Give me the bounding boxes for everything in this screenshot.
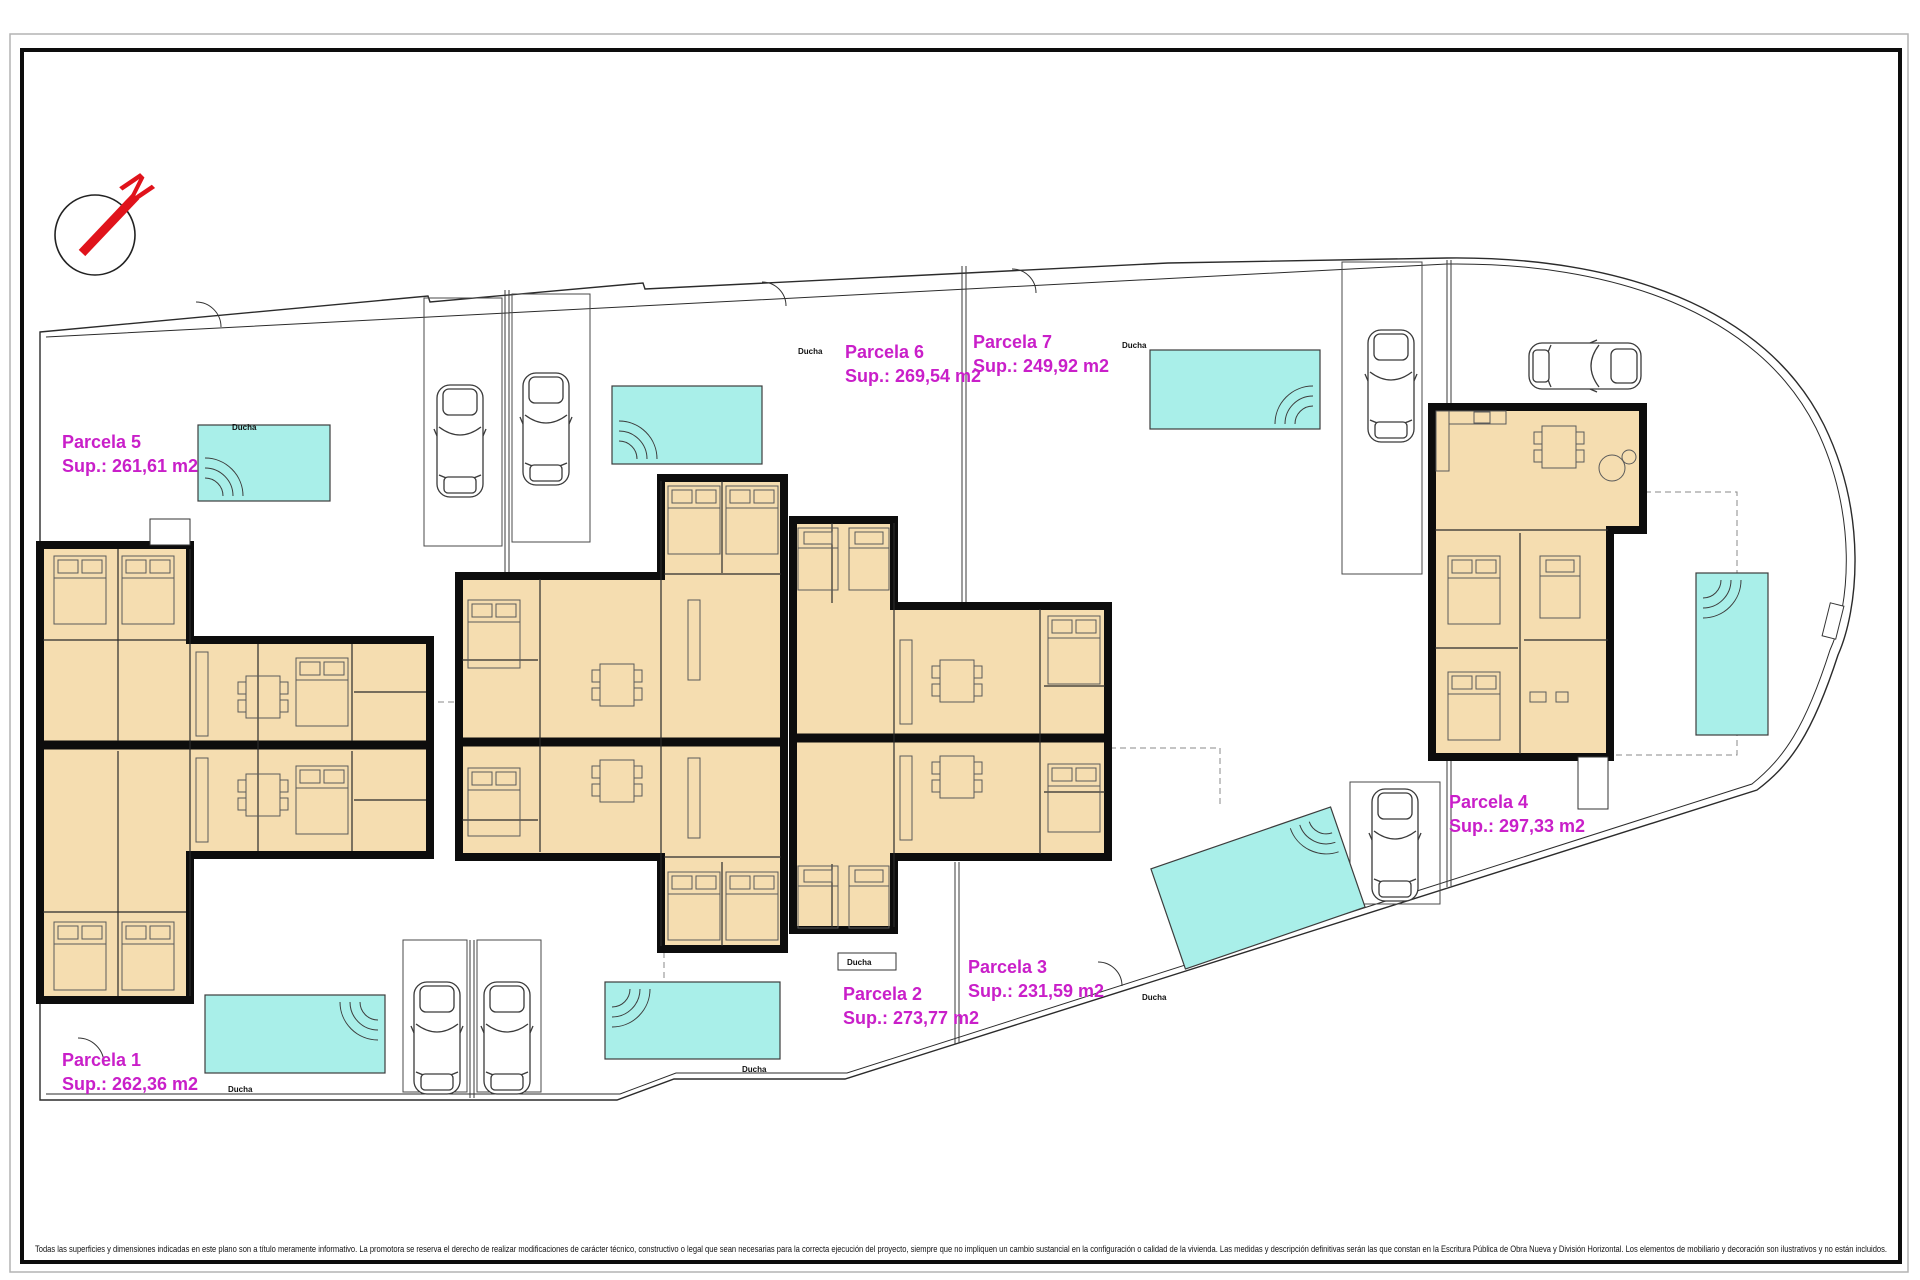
shower-label: Ducha [742,1065,767,1074]
parcel-6-area: Sup.: 269,54 m2 [845,366,981,386]
parcel-5-area: Sup.: 261,61 m2 [62,456,198,476]
car-icon [434,385,486,497]
site-plan-drawing: N [0,0,1920,1280]
parcel-4-name: Parcela 4 [1449,792,1528,812]
pool-parcela-7 [1150,350,1320,429]
car-icon [1529,340,1641,392]
pool-parcela-6 [612,386,762,464]
parcel-1-area: Sup.: 262,36 m2 [62,1074,198,1094]
parcel-3-area: Sup.: 231,59 m2 [968,981,1104,1001]
shower-label: Ducha [232,423,257,432]
shower-label: Ducha [1122,341,1147,350]
house-block-parcela-4 [1432,407,1643,809]
parcel-2-name: Parcela 2 [843,984,922,1004]
parcel-6-name: Parcela 6 [845,342,924,362]
shower-label: Ducha [847,958,872,967]
parcel-2-area: Sup.: 273,77 m2 [843,1008,979,1028]
parcel-7-name: Parcela 7 [973,332,1052,352]
floor-plan-page: N [0,0,1920,1280]
pool-parcela-2 [605,982,780,1059]
pool-parcela-5 [198,425,330,501]
car-icon [520,373,572,485]
pool-parcela-4 [1696,573,1768,735]
parcel-3-name: Parcela 3 [968,957,1047,977]
shower-label: Ducha [798,347,823,356]
car-icon [411,982,463,1094]
parcel-4-area: Sup.: 297,33 m2 [1449,816,1585,836]
parcel-7-area: Sup.: 249,92 m2 [973,356,1109,376]
pool-parcela-1 [205,995,385,1073]
parcel-1-name: Parcela 1 [62,1050,141,1070]
disclaimer-text: Todas las superficies y dimensiones indi… [35,1244,1887,1254]
parcel-5-name: Parcela 5 [62,432,141,452]
car-icon [1365,330,1417,442]
shower-label: Ducha [1142,993,1167,1002]
car-icon [1369,789,1421,901]
shower-label: Ducha [228,1085,253,1094]
car-icon [481,982,533,1094]
